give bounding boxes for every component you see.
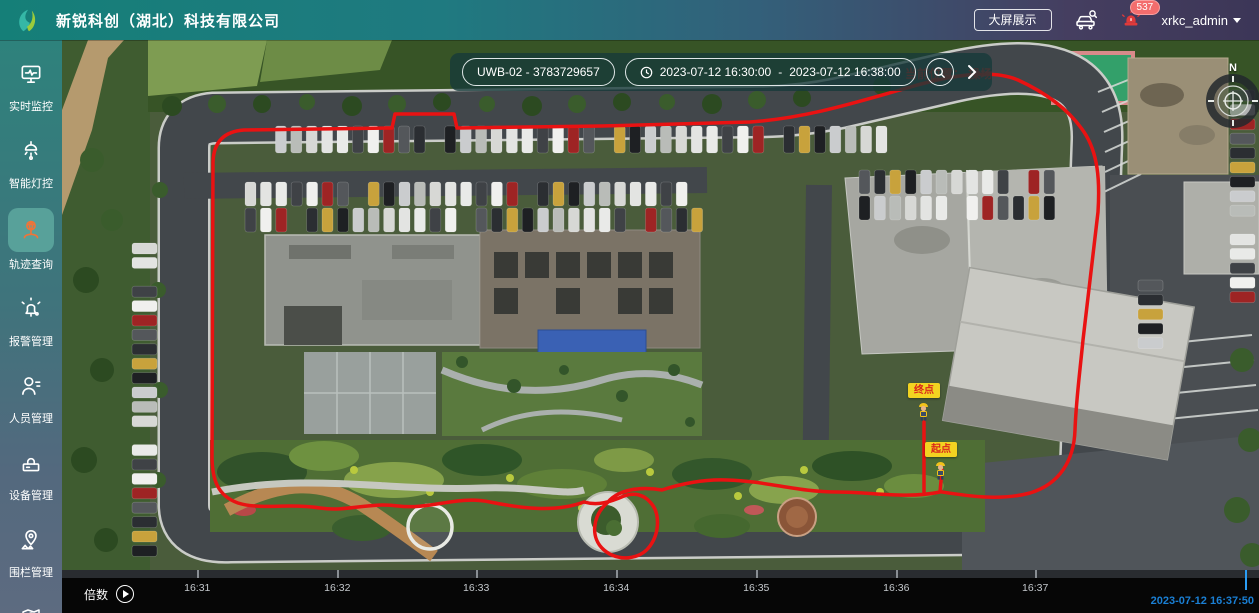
sidebar-item-3[interactable]: 报警管理 [1, 289, 61, 349]
sidebar-item-0[interactable]: 实时监控 [1, 54, 61, 114]
compass-north-label: N [1229, 62, 1237, 74]
vehicle-search-button[interactable] [1072, 8, 1100, 32]
clock-icon [640, 66, 653, 79]
sidebar-item-2[interactable]: 轨迹查询 [1, 208, 61, 272]
worker-figure-start [933, 460, 948, 480]
alarm-notifications-button[interactable]: 537 [1120, 9, 1142, 31]
timeline-tick-label: 16:34 [603, 582, 629, 594]
timeline-tick [756, 570, 758, 578]
timeline-cursor[interactable] [1245, 570, 1247, 590]
trajectory-icon [8, 208, 54, 252]
search-icon [933, 66, 946, 79]
timeline-tick-label: 16:32 [324, 582, 350, 594]
speed-label: 倍数 [84, 586, 108, 603]
sidebar-item-label: 设备管理 [9, 487, 53, 503]
timeline-tick-label: 16:35 [743, 582, 769, 594]
start-point-marker: 起点 [925, 442, 957, 457]
timeline-tick-label: 16:33 [463, 582, 489, 594]
monitor-icon [8, 54, 54, 94]
fence-pin-icon [8, 520, 54, 560]
time-start-value: 2023-07-12 16:30:00 [660, 65, 771, 79]
play-icon [123, 590, 129, 598]
device-select-value: UWB-02 - 3783729657 [477, 65, 600, 79]
timeline-tick-label: 16:36 [883, 582, 909, 594]
query-toolbar: UWB-02 - 3783729657 2023-07-12 16:30:00 … [450, 53, 992, 91]
sidebar-item-4[interactable]: 人员管理 [1, 366, 61, 426]
aerial-map-image [62, 40, 1259, 570]
sidebar-item-label: 实时监控 [9, 98, 53, 114]
company-logo-icon [14, 5, 44, 35]
device-icon [8, 443, 54, 483]
app-window: 新锐科创（湖北）科技有限公司 大屏展示 [0, 0, 1259, 613]
sidebar-map-tool[interactable] [1, 597, 61, 613]
username: xrkc_admin [1162, 13, 1228, 28]
map-icon [8, 597, 54, 613]
alarm-count-badge: 537 [1130, 0, 1161, 15]
top-header: 新锐科创（湖北）科技有限公司 大屏展示 [0, 0, 1259, 40]
timeline-tick [616, 570, 618, 578]
timeline-tick [476, 570, 478, 578]
compass-control[interactable]: N [1205, 62, 1259, 136]
big-screen-button[interactable]: 大屏展示 [974, 9, 1052, 31]
time-range-separator: - [778, 65, 782, 79]
lamp-icon [8, 131, 54, 171]
chevron-down-icon [1233, 18, 1241, 23]
page-title: 新锐科创（湖北）科技有限公司 [56, 10, 280, 31]
user-menu[interactable]: xrkc_admin [1162, 13, 1241, 28]
time-range-picker[interactable]: 2023-07-12 16:30:00 - 2023-07-12 16:38:0… [625, 58, 916, 86]
search-button[interactable] [926, 58, 954, 86]
play-button[interactable] [116, 585, 134, 603]
sidebar-item-label: 人员管理 [9, 410, 53, 426]
worker-figure-end [916, 401, 931, 421]
person-icon [8, 366, 54, 406]
sidebar-item-1[interactable]: 智能灯控 [1, 131, 61, 191]
sidebar-item-6[interactable]: 围栏管理 [1, 520, 61, 580]
car-search-icon [1072, 8, 1100, 32]
timeline-tick-label: 16:37 [1022, 582, 1048, 594]
playback-timeline: 16:3116:3216:3316:3416:3516:3616:37 倍数 2… [62, 570, 1259, 613]
aerial-map: UWB-02 - 3783729657 2023-07-12 16:30:00 … [62, 40, 1259, 570]
courtyard [304, 352, 702, 436]
timeline-tick [896, 570, 898, 578]
timeline-tick [337, 570, 339, 578]
expand-toolbar-button[interactable] [964, 64, 980, 80]
sidebar-nav: 实时监控智能灯控轨迹查询报警管理人员管理设备管理围栏管理 V 1.0 [0, 40, 62, 613]
end-point-marker: 终点 [908, 383, 940, 398]
sidebar-item-label: 报警管理 [9, 333, 53, 349]
device-select[interactable]: UWB-02 - 3783729657 [462, 58, 615, 86]
sidebar-item-label: 智能灯控 [9, 175, 53, 191]
timeline-tick [1035, 570, 1037, 578]
sidebar-item-label: 轨迹查询 [9, 256, 53, 272]
chevron-right-icon [966, 64, 978, 80]
timeline-tick [197, 570, 199, 578]
sidebar-item-label: 围栏管理 [9, 564, 53, 580]
timeline-scrubber[interactable] [62, 570, 1259, 578]
time-end-value: 2023-07-12 16:38:00 [789, 65, 900, 79]
compass-icon [1206, 74, 1259, 128]
alarm-bell-icon [8, 289, 54, 329]
sidebar-item-5[interactable]: 设备管理 [1, 443, 61, 503]
timeline-tick-label: 16:31 [184, 582, 210, 594]
cursor-timestamp: 2023-07-12 16:37:50 [1151, 595, 1254, 607]
